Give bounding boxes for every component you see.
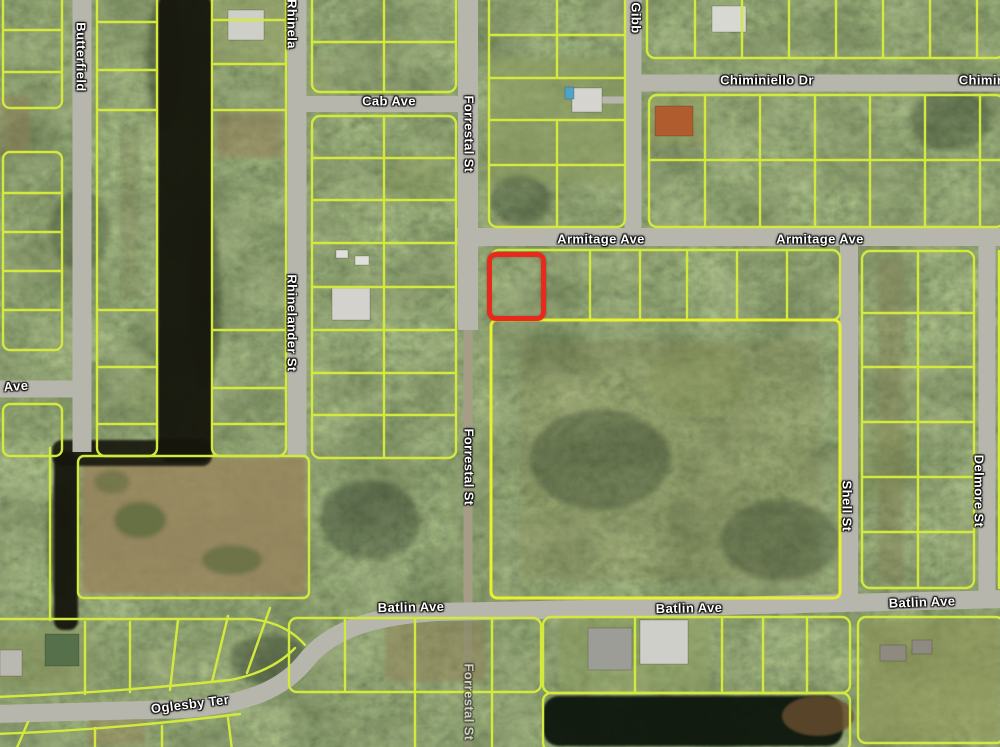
house: [588, 628, 632, 670]
canal-south: [54, 452, 78, 630]
canal-north: [158, 0, 212, 462]
map-canvas[interactable]: ButterfieldRhinelaCab AveForrestal StGib…: [0, 0, 1000, 747]
house-green-roof: [45, 634, 79, 666]
shed: [355, 256, 369, 265]
house: [640, 620, 688, 664]
swimming-pool: [565, 87, 574, 99]
house: [0, 650, 22, 676]
shed: [336, 250, 348, 258]
house-orange-roof: [655, 106, 693, 136]
house: [332, 288, 370, 320]
house: [228, 10, 264, 40]
farm-building: [880, 645, 906, 661]
highlighted-parcel: [487, 252, 546, 321]
satellite-imagery: [0, 0, 1000, 747]
farm-building: [912, 640, 932, 654]
house: [572, 88, 602, 112]
